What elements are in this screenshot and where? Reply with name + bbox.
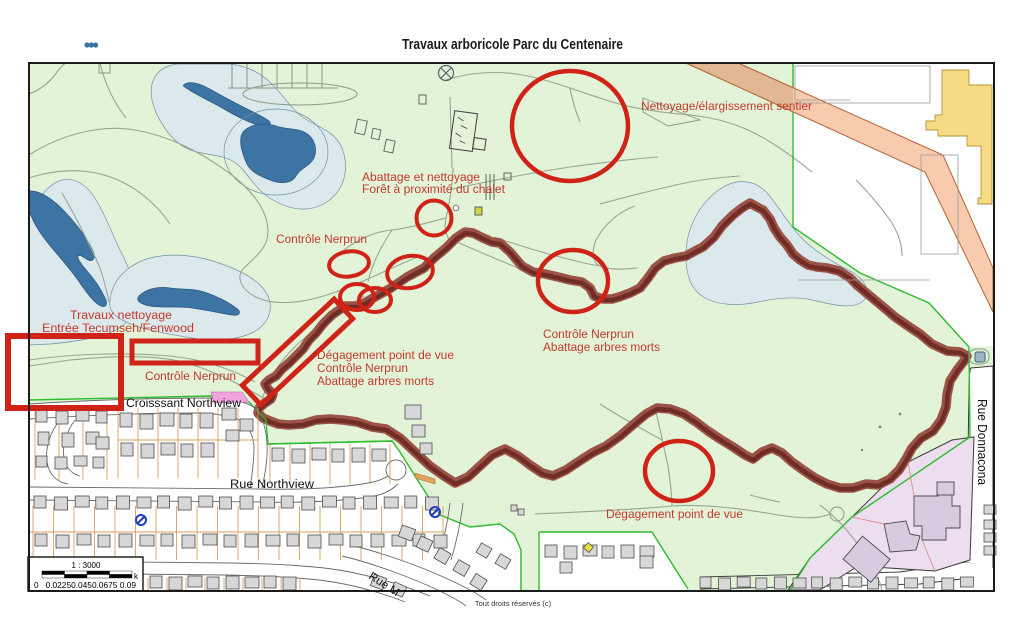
- svg-text:Croisssant Northview: Croisssant Northview: [126, 396, 241, 410]
- svg-text:Travaux arboricole Parc du Cen: Travaux arboricole Parc du Centenaire: [402, 37, 623, 53]
- svg-text:Rue Donnacona: Rue Donnacona: [975, 399, 989, 485]
- svg-text:Travaux nettoyage: Travaux nettoyage: [70, 308, 172, 322]
- svg-text:Entrée Tecumseh/Fenwood: Entrée Tecumseh/Fenwood: [42, 321, 194, 335]
- svg-text:Contrôle Nerprun: Contrôle Nerprun: [317, 361, 408, 375]
- svg-text:Abattage arbres morts: Abattage arbres morts: [543, 340, 660, 354]
- svg-text:Rue Northview: Rue Northview: [230, 477, 314, 491]
- svg-text:Contrôle Nerprun: Contrôle Nerprun: [145, 369, 236, 383]
- svg-text:Tout droits réservés (c): Tout droits réservés (c): [475, 599, 552, 608]
- svg-text:Contrôle Nerprun: Contrôle Nerprun: [543, 327, 634, 341]
- svg-text:0 0.02250.0450.0675 0.09: 0 0.02250.0450.0675 0.09: [34, 581, 136, 590]
- svg-text:Forêt à proximité du chalet: Forêt à proximité du chalet: [362, 182, 506, 196]
- svg-text:Abattage arbres morts: Abattage arbres morts: [317, 374, 434, 388]
- svg-text:1 : 3000: 1 : 3000: [72, 561, 101, 570]
- svg-text:Nettoyage/élargissement sentie: Nettoyage/élargissement sentier: [641, 99, 812, 113]
- svg-text:Dégagement point de vue: Dégagement point de vue: [317, 348, 454, 362]
- svg-text:Contrôle Nerprun: Contrôle Nerprun: [276, 232, 367, 246]
- svg-text:Dégagement point de vue: Dégagement point de vue: [606, 507, 743, 521]
